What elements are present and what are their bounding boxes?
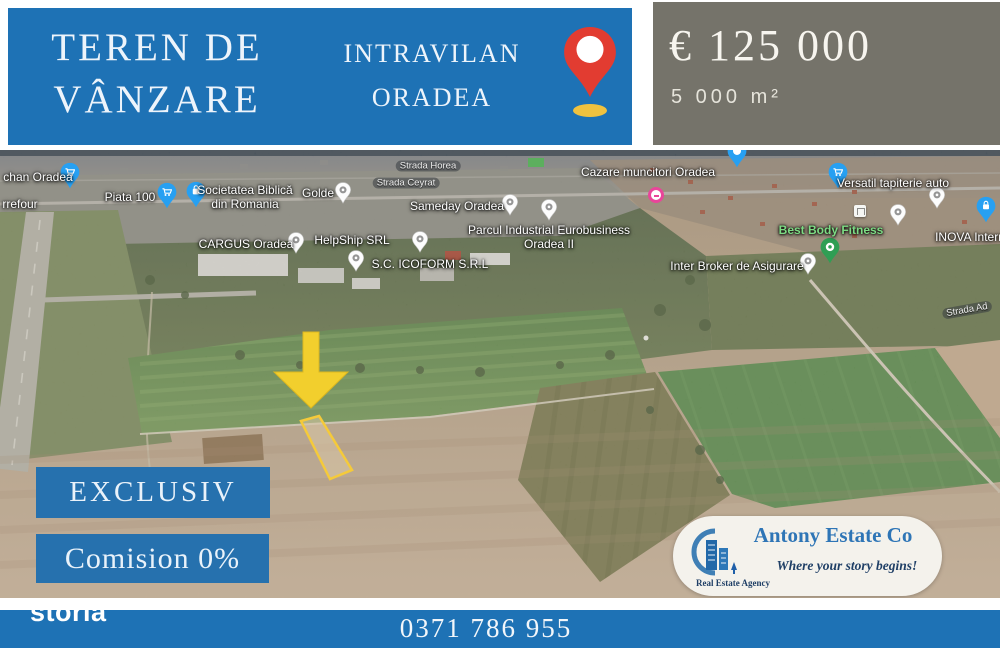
title-banner: TEREN DE VÂNZARE INTRAVILAN ORADEA [8,8,632,145]
agency-logo-icon [689,528,737,576]
agency-name: Antony Estate Co [733,523,933,548]
fitness-pin-icon [820,237,841,265]
map-label-golde: Golde [302,186,334,200]
map-label-icoform: S.C. ICOFORM S.R.L [372,257,489,271]
place-pin-icon [502,193,519,216]
place-pin-icon [890,203,907,226]
footer-divider [0,598,1000,610]
agency-card: Antony Estate Co Where your story begins… [673,516,942,596]
road-label-strada-ceyrat: Strada Ceyrat [373,178,440,189]
storia-watermark: storia [30,597,107,628]
map-label-inter-broker: Inter Broker de Asigurare [670,259,803,273]
location-pin-icon [561,22,619,102]
place-pin-icon [348,249,365,272]
footer-bar: 0371 786 955 [0,610,1000,648]
place-pin-icon [335,181,352,204]
map-label-parcul-industrial: Parcul Industrial Eurobusiness Oradea II [464,223,634,251]
exclusive-badge: EXCLUSIV [36,467,270,518]
map-label-cargus: CARGUS Oradea [199,237,294,251]
land-area: 5 000 m² [671,86,782,109]
ad-title-line2: VÂNZARE [26,74,288,126]
ad-title-line1: TEREN DE [26,22,288,74]
commission-badge: Comision 0% [36,534,269,583]
map-label-inova: INOVA Internat [935,230,1000,244]
pink-poi-icon [648,187,664,203]
place-pin-icon [541,198,558,221]
small-poi-icon [854,205,866,217]
shopping-cart-pin-icon [157,182,178,210]
price-amount: € 125 000 [669,20,872,71]
map-label-versatil: Versatil tapiterie auto [837,176,949,190]
map-label-best-body-fitness: Best Body Fitness [779,223,884,237]
price-box: € 125 000 5 000 m² [653,2,1000,145]
ad-subtitle: INTRAVILAN ORADEA [326,32,538,124]
road-label-strada-horea: Strada Horea [396,161,461,172]
map-label-carrefour: rrefour [2,197,37,211]
map-label-societatea: Societatea Biblică din Romania [197,183,293,211]
phone-number: 0371 786 955 [0,610,972,648]
lock-pin-icon [976,196,997,224]
map-label-sameday: Sameday Oradea [410,199,504,213]
map-label-helpship: HelpShip SRL [314,233,389,247]
ad-subtitle-line2: ORADEA [326,76,538,120]
map-label-piata100: Piata 100 [105,190,156,204]
real-estate-ad: TEREN DE VÂNZARE INTRAVILAN ORADEA € 125… [0,0,1000,648]
pin-shadow-ellipse [573,104,607,117]
agency-sublabel: Real Estate Agency [683,578,783,588]
ad-subtitle-line1: INTRAVILAN [326,32,538,76]
map-label-auchan: chan Oradea [3,170,72,184]
map-label-cazare: Cazare muncitori Oradea [581,165,715,179]
place-pin-icon [412,230,429,253]
agency-tagline: Where your story begins! [761,558,933,574]
ad-title: TEREN DE VÂNZARE [26,22,288,132]
shopping-cart-pin-icon [727,150,748,169]
